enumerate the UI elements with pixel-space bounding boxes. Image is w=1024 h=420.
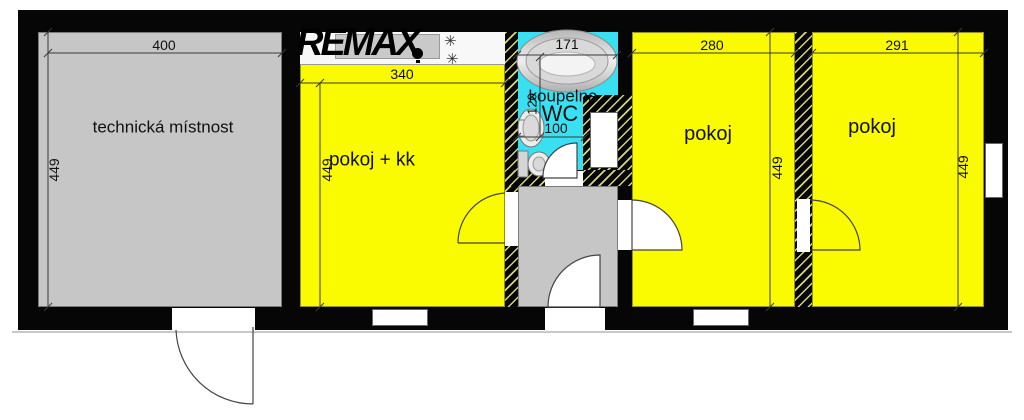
floor-plan: ✳ ✳ technická místnost pokoj + kk [0, 0, 1024, 420]
dimension-label-bath-width: 171 [555, 37, 578, 51]
dimension-label-mid-height: 449 [770, 156, 784, 179]
door-opening-hall-entrance [545, 308, 605, 330]
window-pokoj-middle [693, 309, 749, 326]
remax-watermark: REMAX [296, 24, 418, 62]
hallway [518, 186, 618, 307]
dimension-label-tech-height: 449 [47, 158, 61, 181]
window-pokoj-kk [372, 309, 428, 326]
door-opening-tech [172, 308, 255, 330]
shaft-opening [590, 112, 618, 168]
dimension-label-right-height: 449 [956, 155, 970, 178]
dimension-label-mid-width: 280 [700, 38, 723, 52]
dimension-label-kk-height: 449 [320, 158, 334, 181]
building-shadow [12, 331, 1012, 333]
dimension-label-right-width: 291 [885, 38, 908, 52]
room-technicka [38, 32, 282, 307]
dimension-label-wc-height: 120 [526, 93, 539, 115]
door-arc-tech [176, 327, 253, 404]
door-opening-koupelna [545, 171, 583, 186]
wall-mid-right [795, 32, 812, 307]
room-label-pokoj-middle: pokoj [684, 124, 732, 144]
door-opening-pokoj-middle [618, 200, 632, 250]
wall-top [18, 10, 1008, 32]
door-opening-pokoj-kk [505, 192, 518, 246]
dimension-label-kk-width: 340 [390, 67, 413, 81]
room-label-pokoj-kk: pokoj + kk [329, 151, 415, 170]
wall-left [18, 10, 38, 330]
door-opening-pokoj-right [797, 199, 810, 252]
dimension-label-wc-width: 100 [544, 121, 567, 135]
room-label-technicka: technická místnost [93, 119, 234, 136]
wall-bottom [18, 307, 1008, 330]
dimension-label-tech-width: 400 [152, 38, 175, 52]
room-label-pokoj-right: pokoj [848, 117, 896, 137]
remax-balloon-icon [412, 48, 424, 62]
window-pokoj-right [985, 143, 1003, 198]
